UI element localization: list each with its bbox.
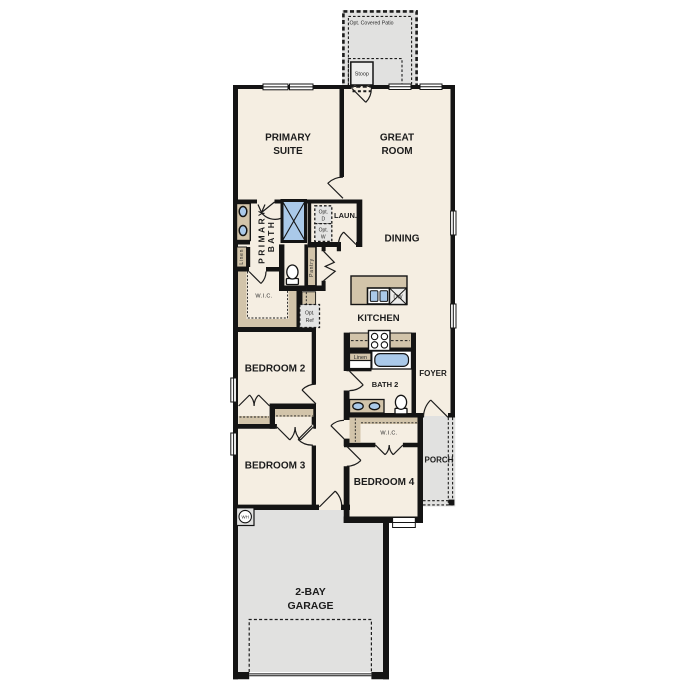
svg-text:LAUN.: LAUN.	[334, 211, 357, 220]
svg-text:PORCH: PORCH	[425, 455, 454, 464]
svg-text:2-BAY: 2-BAY	[295, 586, 326, 598]
svg-text:Opt. Covered Patio: Opt. Covered Patio	[349, 20, 393, 26]
svg-text:DINING: DINING	[385, 234, 420, 245]
svg-text:BEDROOM 3: BEDROOM 3	[245, 461, 306, 472]
svg-text:BEDROOM 2: BEDROOM 2	[245, 364, 306, 375]
svg-text:Opt.: Opt.	[305, 310, 314, 316]
svg-text:PRIMARY: PRIMARY	[256, 208, 266, 264]
svg-text:BATH 2: BATH 2	[372, 380, 399, 389]
svg-text:BEDROOM 4: BEDROOM 4	[354, 477, 415, 488]
svg-text:GARAGE: GARAGE	[287, 600, 333, 612]
svg-text:Ref: Ref	[306, 318, 314, 324]
svg-text:BATH: BATH	[266, 220, 276, 253]
svg-text:KITCHEN: KITCHEN	[357, 313, 399, 324]
svg-text:W.I.C.: W.I.C.	[255, 293, 272, 299]
svg-text:W.I.C.: W.I.C.	[380, 430, 397, 436]
svg-text:FOYER: FOYER	[419, 369, 447, 378]
svg-text:W: W	[321, 235, 326, 241]
svg-text:GREAT: GREAT	[380, 133, 414, 144]
svg-text:Linen: Linen	[239, 249, 245, 265]
svg-text:ROOM: ROOM	[381, 146, 412, 157]
svg-text:Pantry: Pantry	[309, 258, 315, 277]
svg-text:D: D	[321, 217, 325, 223]
svg-text:Opt.: Opt.	[319, 227, 328, 233]
svg-text:Linen: Linen	[354, 355, 367, 361]
svg-text:WH: WH	[242, 514, 249, 519]
svg-text:Opt.: Opt.	[319, 209, 328, 215]
svg-text:DW: DW	[393, 295, 403, 301]
svg-text:Stoop: Stoop	[355, 72, 369, 78]
svg-text:SUITE: SUITE	[273, 146, 303, 157]
svg-text:PRIMARY: PRIMARY	[265, 133, 311, 144]
